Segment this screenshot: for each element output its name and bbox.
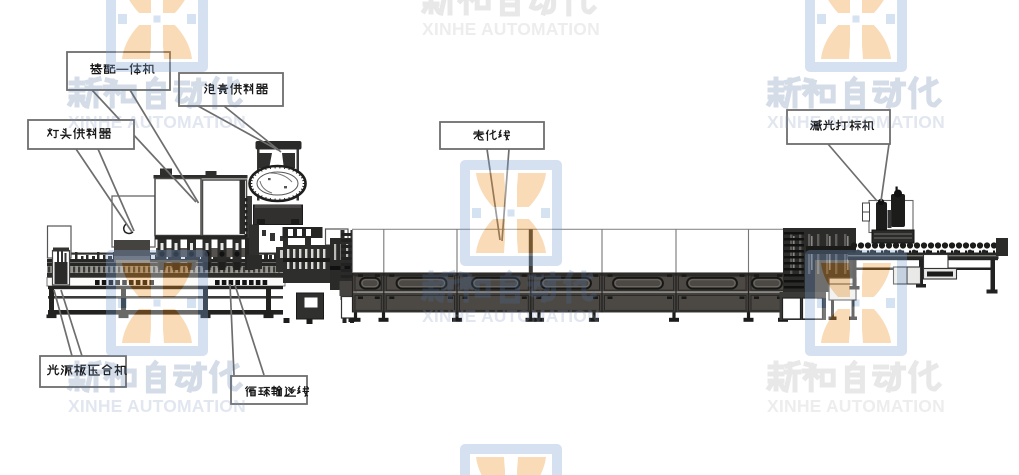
svg-text:XINHE AUTOMATION: XINHE AUTOMATION bbox=[68, 396, 246, 416]
svg-text:XINHE AUTOMATION: XINHE AUTOMATION bbox=[422, 306, 600, 326]
svg-text:XINHE AUTOMATION: XINHE AUTOMATION bbox=[767, 396, 945, 416]
svg-text:XINHE AUTOMATION: XINHE AUTOMATION bbox=[68, 112, 246, 132]
svg-text:XINHE AUTOMATION: XINHE AUTOMATION bbox=[422, 19, 600, 39]
svg-text:XINHE AUTOMATION: XINHE AUTOMATION bbox=[767, 112, 945, 132]
